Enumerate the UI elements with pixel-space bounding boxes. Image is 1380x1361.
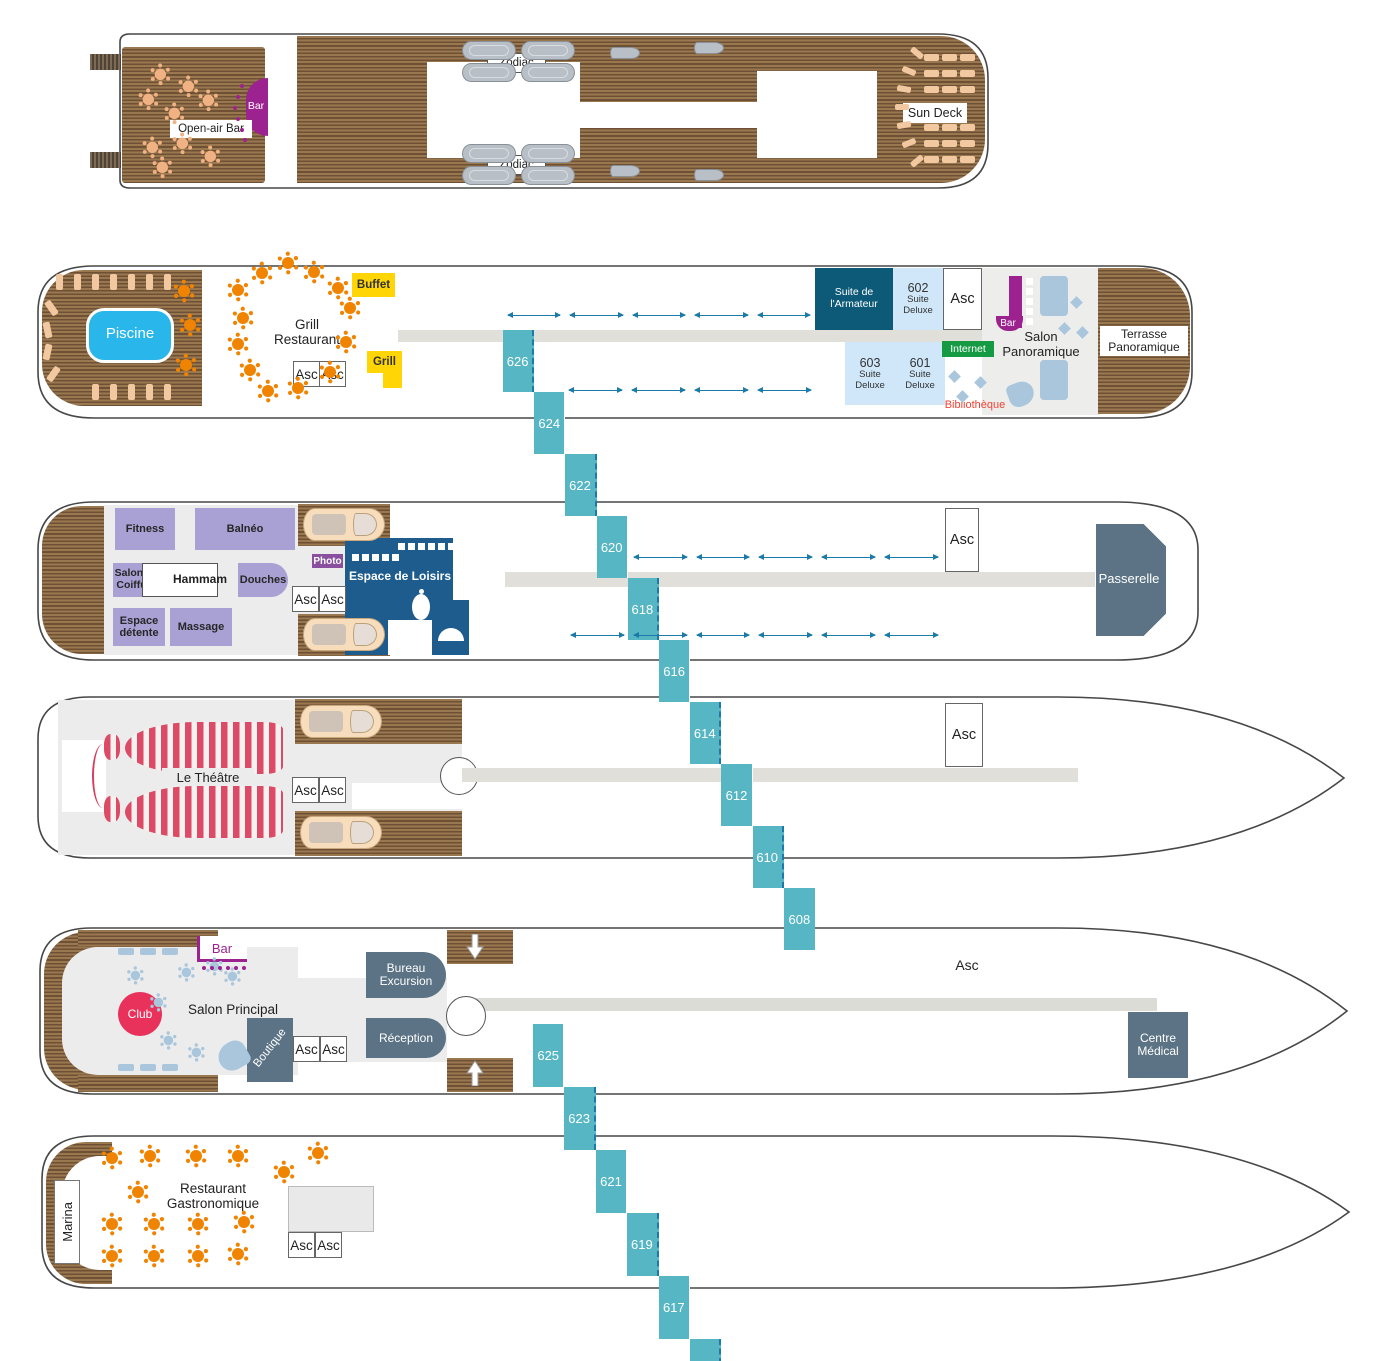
restaurant-gastronomique-label: Restaurant Gastronomique <box>146 1178 280 1214</box>
deck5-stern-wood <box>42 506 106 654</box>
connecting-cabins-arrow <box>885 557 938 558</box>
table-icon <box>148 62 173 87</box>
bar-stool-icon <box>1026 318 1033 325</box>
connecting-cabins-arrow <box>634 557 687 558</box>
deck6-bar-label: Bar <box>996 316 1020 330</box>
sofa-icon <box>140 948 156 955</box>
piscine-label: Piscine <box>88 320 172 346</box>
window-square-icon <box>372 554 379 561</box>
elevator-asc: Asc <box>292 777 319 803</box>
bar-stool-icon <box>1026 288 1033 295</box>
espace-loisirs-label: Espace de Loisirs <box>348 564 452 588</box>
massage-room: Massage <box>170 608 232 646</box>
galley-block <box>288 1186 374 1232</box>
connecting-cabins-arrow <box>695 390 748 391</box>
table-icon <box>183 1143 209 1169</box>
connecting-cabins-arrow <box>570 315 622 316</box>
lounger-icon <box>924 86 939 93</box>
deck-cutout <box>453 525 507 600</box>
cabin-612: 612 <box>721 764 752 826</box>
lounger-icon <box>924 140 939 147</box>
theatre-seats <box>125 722 283 774</box>
deck-cutout <box>388 620 432 655</box>
lounger-icon <box>110 384 117 400</box>
table-icon <box>225 1143 251 1169</box>
cabin-617: 617 <box>659 1276 690 1339</box>
bibliotheque-label: Bibliothèque <box>938 398 1012 412</box>
sofa-icon <box>162 1064 178 1071</box>
table-icon <box>231 1209 257 1235</box>
connecting-cabins-arrow <box>632 390 685 391</box>
connecting-cabins-arrow <box>697 557 750 558</box>
connecting-cabins-arrow <box>508 315 560 316</box>
bar-dot-icon <box>236 95 240 99</box>
connecting-cabins-arrow <box>697 635 750 636</box>
elevator-asc: Asc <box>947 956 987 974</box>
elevator-asc: Asc <box>945 703 983 767</box>
cabin-614: 614 <box>690 702 721 764</box>
tender-boat-icon <box>300 816 382 849</box>
bar-dot-icon <box>243 138 247 142</box>
window-square-icon <box>352 554 359 561</box>
lounger-icon <box>924 124 939 131</box>
bar-stool-icon <box>1026 278 1033 285</box>
arrow-up-icon <box>466 1058 484 1086</box>
cabin-621: 621 <box>596 1150 627 1213</box>
sun-deck-aft-wood <box>122 47 265 183</box>
table-icon <box>171 278 197 304</box>
elevator-asc: Asc <box>319 777 346 803</box>
table-icon <box>125 1179 151 1205</box>
lounger-icon <box>942 124 957 131</box>
lounger-icon <box>942 140 957 147</box>
lounger-icon <box>960 86 975 93</box>
deck3-edge-wood <box>78 1075 218 1092</box>
bureau-excursion: Bureau Excursion <box>366 952 446 998</box>
lounger-icon <box>924 54 939 61</box>
tender-boat-icon <box>303 508 385 541</box>
connecting-cabins-arrow <box>633 315 685 316</box>
hot-tub-step-icon <box>419 589 424 594</box>
zodiac-boat-icon <box>521 41 575 60</box>
cabin-619: 619 <box>627 1213 658 1276</box>
lounger-icon <box>942 70 957 77</box>
lounger-icon <box>92 384 99 400</box>
connecting-cabins-arrow <box>758 390 811 391</box>
table-icon <box>337 295 363 321</box>
bar-stool-icon <box>1026 298 1033 305</box>
lounger-icon <box>960 54 975 61</box>
cabin-608: 608 <box>784 888 815 950</box>
table-icon <box>99 1211 125 1237</box>
cabin-623: 623 <box>564 1087 595 1150</box>
hammam-label: Hammam <box>165 571 235 587</box>
small-boat-icon <box>694 169 724 181</box>
salon-panoramique-label: Salon Panoramique <box>995 330 1087 360</box>
table-icon <box>125 965 146 986</box>
sun-deck-label: Sun Deck <box>903 103 967 123</box>
centre-medical: Centre Médical <box>1128 1012 1188 1078</box>
bar-dot-icon <box>202 966 206 970</box>
theatre-seats <box>104 734 120 760</box>
sofa-icon <box>118 948 134 955</box>
lounger-icon <box>895 104 909 110</box>
table-icon <box>141 1243 167 1269</box>
table-icon <box>333 329 359 355</box>
arrow-down-icon <box>466 934 484 962</box>
stern-platform-bottom <box>90 152 121 168</box>
marina-label: Marina <box>54 1180 80 1264</box>
lounger-icon <box>164 384 171 400</box>
terrasse-label: Terrasse Panoramique <box>1100 326 1188 356</box>
table-icon <box>99 1243 125 1269</box>
table-icon <box>186 1042 207 1063</box>
hot-tub-icon <box>412 594 430 620</box>
zodiac-boat-icon <box>462 41 516 60</box>
stairwell-circle <box>446 996 486 1036</box>
table-icon <box>230 305 256 331</box>
table-icon <box>170 131 195 156</box>
table-icon <box>196 88 221 113</box>
table-icon <box>99 1145 125 1171</box>
table-icon <box>162 101 187 126</box>
salon-principal-label: Salon Principal <box>178 1000 288 1018</box>
table-icon <box>255 378 281 404</box>
table-icon <box>148 992 169 1013</box>
elevator-asc: Asc <box>293 1036 320 1062</box>
lounger-icon <box>128 384 135 400</box>
small-boat-icon <box>610 165 640 177</box>
window-square-icon <box>398 543 405 550</box>
owner-suite: Suite de l'Armateur <box>815 268 893 330</box>
elevator-asc: Asc <box>945 508 979 572</box>
cabin-620: 620 <box>597 516 628 578</box>
lounger-icon <box>960 70 975 77</box>
deck-cutout <box>757 71 877 158</box>
theatre-seats <box>125 786 283 838</box>
sun-deck-bar-label: Bar <box>244 98 268 114</box>
lounger-icon <box>128 274 135 290</box>
lounger-icon <box>960 140 975 147</box>
window-square-icon <box>382 554 389 561</box>
table-icon <box>198 144 223 169</box>
bar-dot-icon <box>242 966 246 970</box>
bar-dot-icon <box>226 966 230 970</box>
elevator-asc: Asc <box>319 586 346 612</box>
ship-deck-plan: Bar Open-air Bar Zodiac Zodiac Sun Deck … <box>0 0 1380 1361</box>
connecting-cabins-arrow <box>695 315 747 316</box>
connecting-cabins-arrow <box>758 315 810 316</box>
reception: Réception <box>366 1018 446 1058</box>
espace-detente-room: Espace détente <box>113 608 165 646</box>
theatre-label: Le Théâtre <box>162 768 254 786</box>
photo-label: Photo <box>312 554 343 568</box>
cabin-625: 625 <box>533 1024 564 1087</box>
bar-dot-icon <box>210 966 214 970</box>
zodiac-boat-icon <box>462 144 516 163</box>
elevator-asc: Asc <box>315 1232 342 1258</box>
lounger-icon <box>74 274 81 290</box>
buffet-label: Buffet <box>352 273 395 297</box>
sofa-icon <box>140 1064 156 1071</box>
lounger-icon <box>92 274 99 290</box>
window-square-icon <box>408 543 415 550</box>
cabin-616: 616 <box>659 640 690 702</box>
tender-boat-icon <box>303 618 385 651</box>
cabin-622: 622 <box>565 454 596 516</box>
window-square-icon <box>362 554 369 561</box>
table-icon <box>137 1143 163 1169</box>
table-icon <box>305 1140 331 1166</box>
cabin-626: 626 <box>503 330 534 392</box>
bar-dot-icon <box>233 106 237 110</box>
connecting-cabins-arrow <box>822 635 875 636</box>
window-square-icon <box>418 543 425 550</box>
window-square-icon <box>428 543 435 550</box>
lounger-icon <box>942 86 957 93</box>
window-square-icon <box>438 543 445 550</box>
zodiac-boat-icon <box>462 63 516 82</box>
table-icon <box>185 1243 211 1269</box>
table-icon <box>173 352 199 378</box>
connecting-cabins-arrow <box>759 557 812 558</box>
seating-group-icon <box>1040 276 1068 316</box>
lounger-icon <box>960 124 975 131</box>
table-icon <box>141 1211 167 1237</box>
lounger-icon <box>56 274 63 290</box>
cabin-624: 624 <box>534 392 565 454</box>
corridor-deck6 <box>398 330 982 342</box>
bar-dot-icon <box>234 966 238 970</box>
small-boat-icon <box>610 47 640 59</box>
table-icon <box>275 250 301 276</box>
table-icon <box>285 375 311 401</box>
douches-room: Douches <box>238 563 288 597</box>
cabin-618: 618 <box>628 578 659 640</box>
table-icon <box>301 259 327 285</box>
internet-label: Internet <box>942 341 994 357</box>
sofa-icon <box>162 948 178 955</box>
seating-group-icon <box>1040 360 1068 400</box>
zodiac-boat-icon <box>521 63 575 82</box>
sofa-icon <box>118 1064 134 1071</box>
bar-stool-icon <box>1026 308 1033 315</box>
bar-dot-icon <box>236 117 240 121</box>
corridor-deck3 <box>460 998 1157 1011</box>
balneo-room: Balnéo <box>195 508 295 550</box>
elevator-asc: Asc <box>292 586 319 612</box>
suite-602: 602Suite Deluxe <box>893 268 943 330</box>
theatre-seats <box>104 796 120 822</box>
espace-loisirs-area <box>455 600 469 655</box>
lounger-icon <box>110 274 117 290</box>
stern-platform-top <box>90 54 121 70</box>
cabin-610: 610 <box>753 826 784 888</box>
table-icon <box>249 260 275 286</box>
cabin-615: 615 <box>690 1339 721 1361</box>
connecting-cabins-arrow <box>759 635 812 636</box>
table-icon <box>150 155 175 180</box>
window-square-icon <box>448 543 455 550</box>
passerelle-label: Passerelle <box>1096 568 1162 588</box>
lounger-icon <box>146 274 153 290</box>
bar-dot-icon <box>240 84 244 88</box>
grill-label: Grill <box>367 351 402 373</box>
elevator-asc: Asc <box>320 1036 347 1062</box>
lounger-icon <box>960 156 975 163</box>
tender-boat-icon <box>300 705 382 738</box>
table-icon <box>158 1030 179 1051</box>
zodiac-boat-icon <box>521 144 575 163</box>
window-square-icon <box>392 554 399 561</box>
bar-dot-icon <box>218 966 222 970</box>
corridor-deck4 <box>462 768 1078 782</box>
table-icon <box>225 277 251 303</box>
corridor-deck5 <box>505 572 1095 587</box>
table-icon <box>177 312 203 338</box>
lounger-icon <box>942 156 957 163</box>
table-icon <box>136 87 161 112</box>
deck-cutout <box>580 102 757 128</box>
zodiac-boat-icon <box>521 166 575 185</box>
fitness-room: Fitness <box>115 508 175 550</box>
lounger-icon <box>146 384 153 400</box>
table-icon <box>176 962 197 983</box>
bar-dot-icon <box>240 128 244 132</box>
table-icon <box>185 1211 211 1237</box>
table-icon <box>222 966 243 987</box>
table-icon <box>317 359 343 385</box>
lounger-icon <box>942 54 957 61</box>
table-icon <box>225 331 251 357</box>
small-boat-icon <box>694 42 724 54</box>
suite-601: 601Suite Deluxe <box>895 342 945 405</box>
connecting-cabins-arrow <box>571 635 624 636</box>
connecting-cabins-arrow <box>822 557 875 558</box>
connecting-cabins-arrow <box>569 390 622 391</box>
elevator-asc: Asc <box>288 1232 315 1258</box>
suite-603: 603Suite Deluxe <box>845 342 895 405</box>
zodiac-boat-icon <box>462 166 516 185</box>
lounger-icon <box>924 156 939 163</box>
table-icon <box>271 1159 297 1185</box>
table-icon <box>225 1241 251 1267</box>
connecting-cabins-arrow <box>885 635 938 636</box>
elevator-asc: Asc <box>943 268 982 330</box>
connecting-cabins-arrow <box>634 635 687 636</box>
lounger-icon <box>164 274 171 290</box>
lounger-icon <box>924 70 939 77</box>
